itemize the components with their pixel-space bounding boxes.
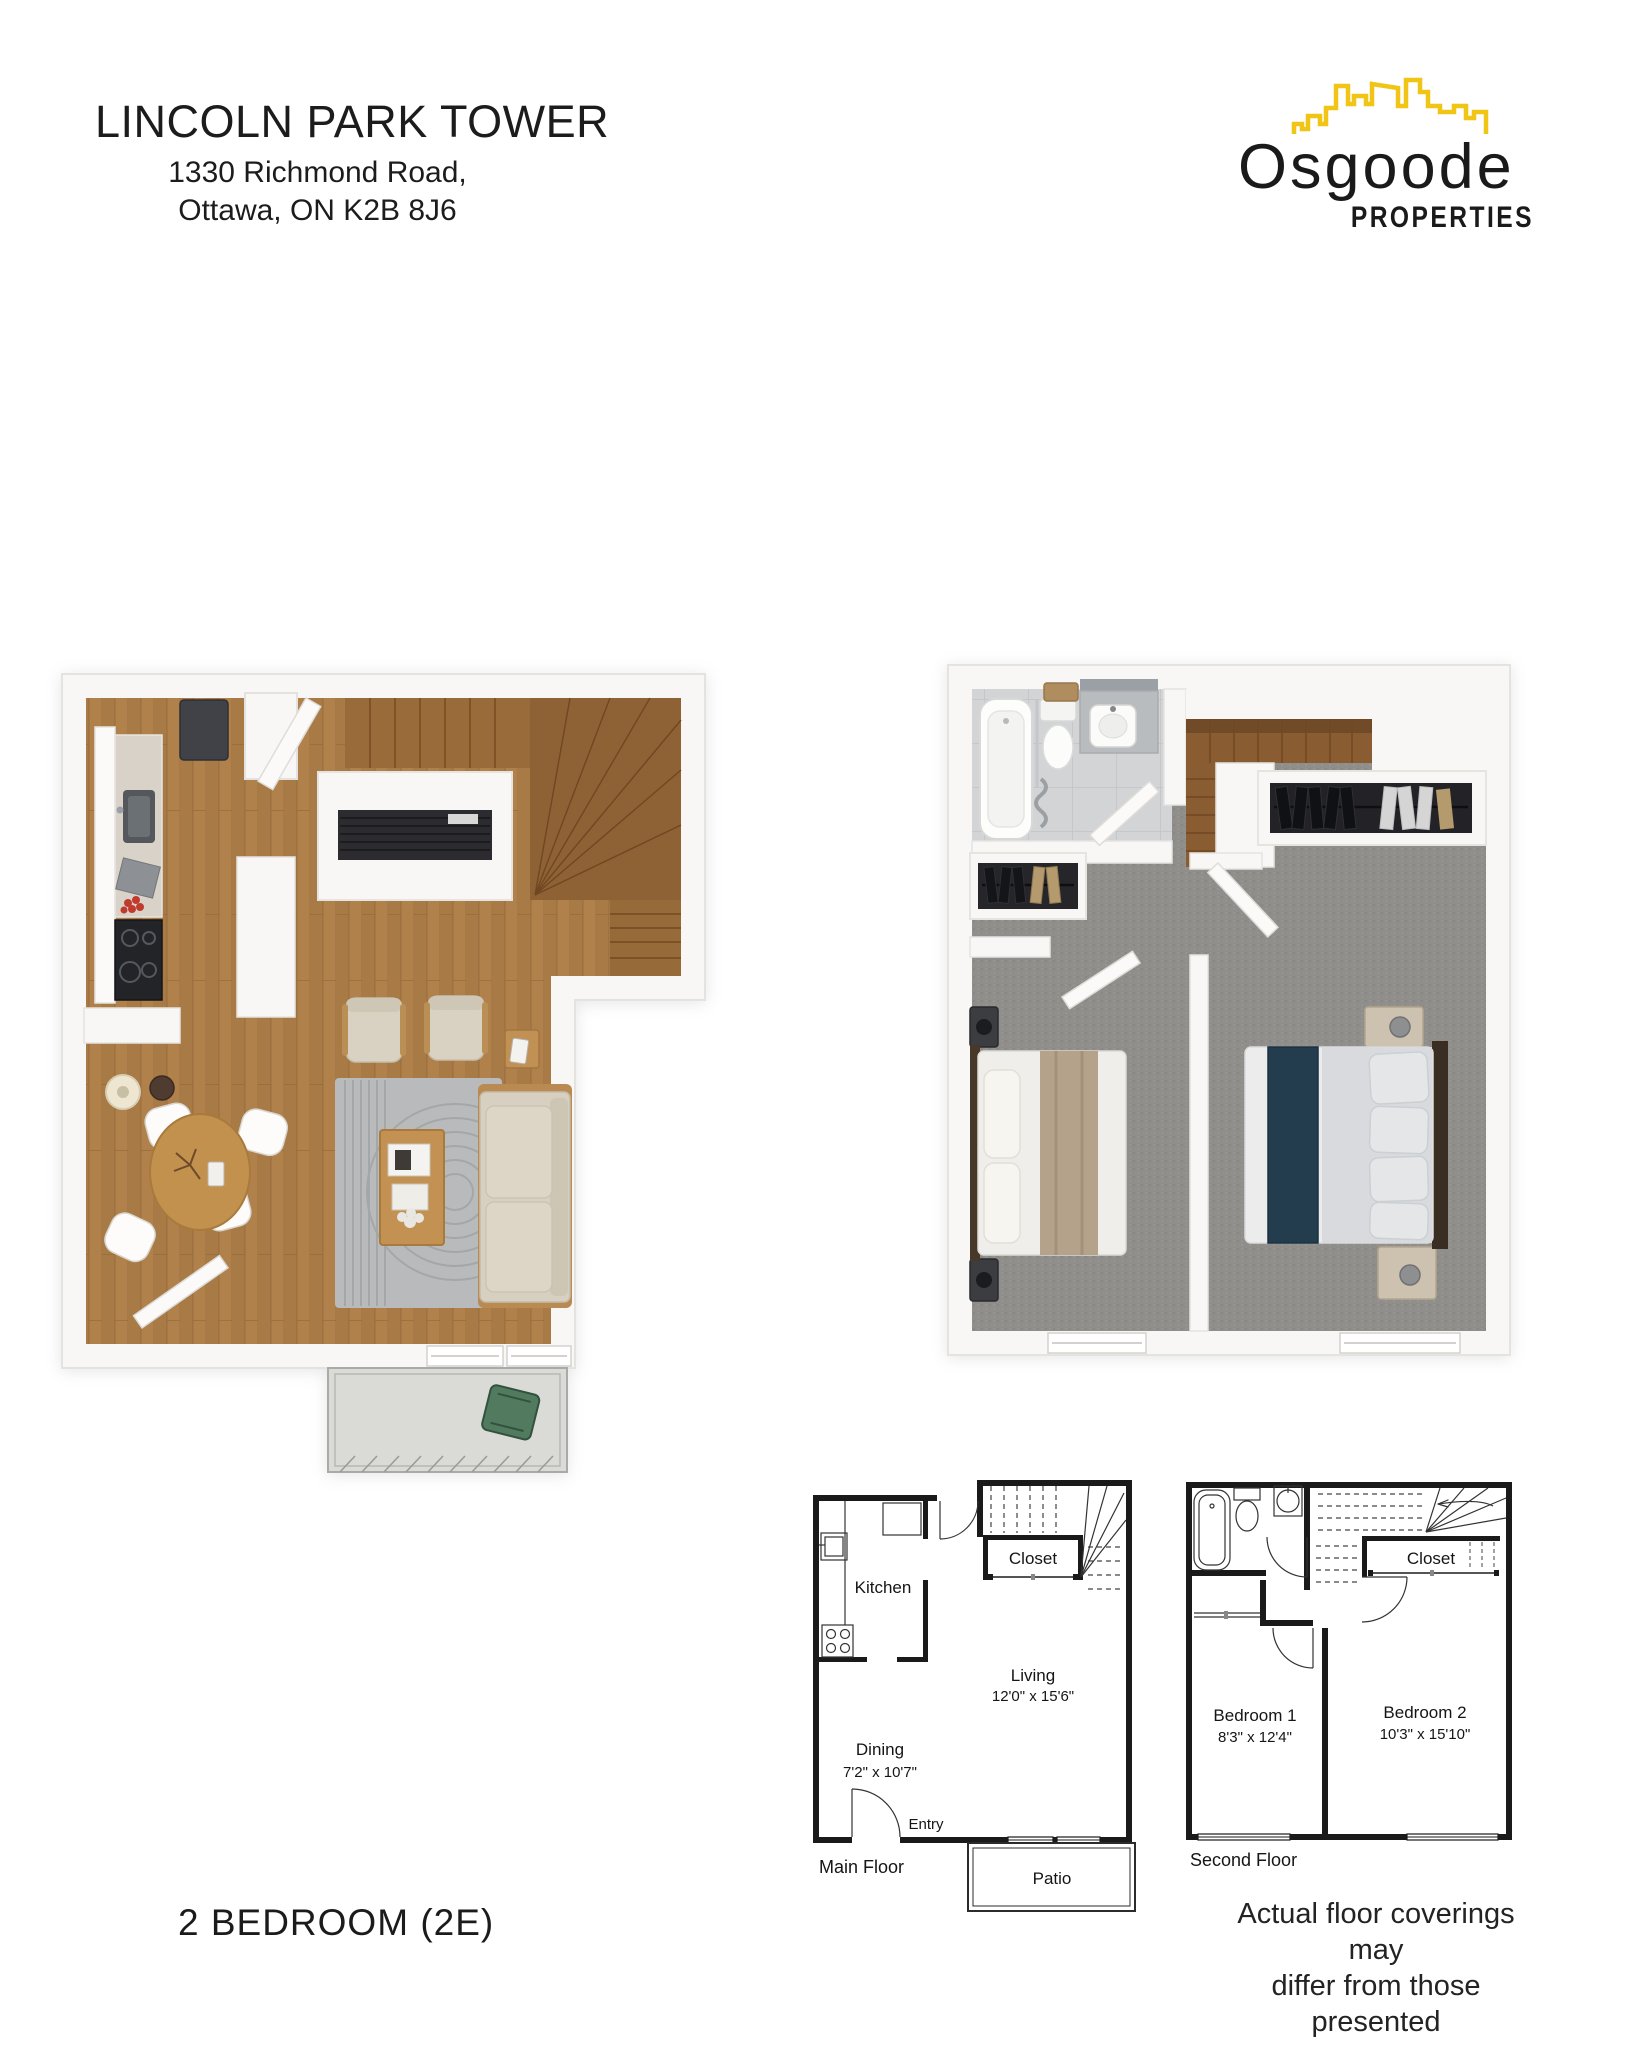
closet-door xyxy=(988,1574,1078,1580)
media-console xyxy=(318,772,512,900)
fridge xyxy=(180,700,228,760)
disclaimer-line1: Actual floor coverings may xyxy=(1218,1896,1534,1968)
basket xyxy=(1044,683,1078,701)
bedroom2-dims: 10'3" x 15'10" xyxy=(1380,1726,1471,1743)
bedroom1-dims: 8'3" x 12'4" xyxy=(1218,1729,1292,1746)
header: LINCOLN PARK TOWER 1330 Richmond Road, O… xyxy=(95,96,540,230)
closet-label: Closet xyxy=(1009,1549,1057,1568)
bedroom2-label: Bedroom 2 xyxy=(1383,1703,1466,1722)
second-floor-2d-plan: Closet Bedroom 1 8'3" x 12'4" Bedroom 2 … xyxy=(1178,1476,1518,1876)
sofa xyxy=(478,1084,572,1308)
stool xyxy=(150,1076,174,1100)
patio-label: Patio xyxy=(1033,1869,1072,1888)
dining-dims: 7'2" x 10'7" xyxy=(843,1764,917,1781)
bathroom-fixtures xyxy=(1194,1486,1302,1570)
upper-wall xyxy=(1372,689,1486,771)
address-line1: 1330 Richmond Road, xyxy=(95,154,540,192)
doors xyxy=(852,1501,978,1837)
walls xyxy=(1186,1482,1512,1840)
side-table xyxy=(505,1030,539,1068)
address: 1330 Richmond Road, Ottawa, ON K2B 8J6 xyxy=(95,154,540,230)
bedroom2-closet xyxy=(1258,771,1486,845)
living-label: Living xyxy=(1011,1666,1055,1685)
closet-label: Closet xyxy=(1407,1549,1455,1568)
building-name: LINCOLN PARK TOWER xyxy=(95,96,540,148)
bedroom1-label: Bedroom 1 xyxy=(1213,1706,1296,1725)
address-line2: Ottawa, ON K2B 8J6 xyxy=(95,192,540,230)
coffee-table xyxy=(380,1130,444,1245)
toilet xyxy=(1040,699,1076,721)
floorplan-flyer: LINCOLN PARK TOWER 1330 Richmond Road, O… xyxy=(0,0,1627,2048)
kitchen-wall xyxy=(237,857,295,1017)
bathroom xyxy=(972,679,1186,863)
second-floor-label: Second Floor xyxy=(1190,1850,1297,1870)
brand-wordmark: Osgoode xyxy=(1238,131,1534,203)
balcony xyxy=(328,1368,567,1472)
disclaimer-line2: differ from those presented xyxy=(1218,1968,1534,2040)
skyline-logo-icon xyxy=(1290,74,1490,136)
bedroom1-closet-door xyxy=(1194,1611,1260,1619)
stove xyxy=(115,920,162,1000)
main-floor-3d-render xyxy=(50,660,720,1480)
doors xyxy=(1267,1537,1407,1668)
brand-tagline: PROPERTIES xyxy=(1291,201,1534,235)
windows xyxy=(427,1346,571,1366)
kitchen-label: Kitchen xyxy=(855,1578,912,1597)
main-floor-2d-plan: Closet Kitchen Living 12'0" x 15'6" Dini… xyxy=(805,1475,1140,1920)
dining-label: Dining xyxy=(856,1740,904,1759)
brand-logo: Osgoode PROPERTIES xyxy=(1238,74,1534,235)
second-floor-3d-render xyxy=(940,655,1520,1395)
main-floor-label: Main Floor xyxy=(819,1857,904,1877)
stair-fan xyxy=(1081,1486,1126,1577)
disclaimer: Actual floor coverings may differ from t… xyxy=(1218,1896,1534,2040)
entry-label: Entry xyxy=(908,1816,944,1833)
living-dims: 12'0" x 15'6" xyxy=(992,1688,1074,1705)
unit-type-label: 2 BEDROOM (2E) xyxy=(178,1902,494,1944)
dining-table xyxy=(150,1114,250,1230)
stair-fan xyxy=(1426,1488,1506,1532)
bedroom1-closet xyxy=(970,853,1086,919)
